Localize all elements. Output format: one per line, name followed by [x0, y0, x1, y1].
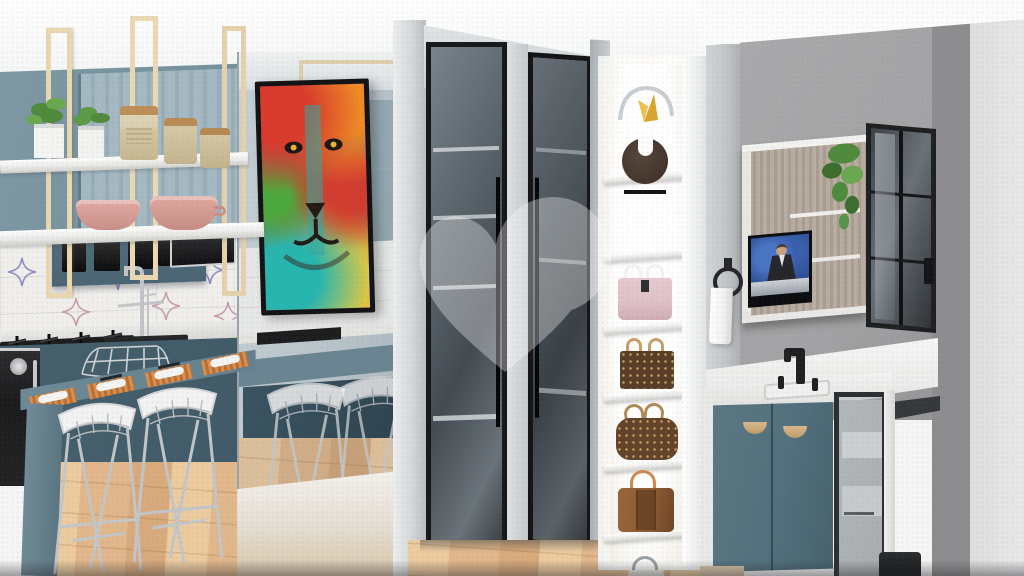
pink-pot-handle — [214, 206, 226, 216]
lion-face-detail — [260, 84, 370, 311]
bathroom-floor-sliver — [700, 566, 744, 576]
wardrobe-interior-shelf — [536, 258, 586, 265]
wardrobe-interior-shelf — [433, 146, 499, 152]
wardrobe-glass-door-corner — [528, 52, 592, 548]
glass-cabinet-face — [866, 123, 936, 333]
reflected-hanging-plant — [814, 137, 866, 242]
wardrobe-center-stile — [507, 44, 528, 546]
cream-handbag — [622, 570, 670, 576]
vanity-left-stile — [702, 396, 713, 572]
ring-sculpture-notch — [638, 136, 653, 156]
tv-screen-news-studio — [751, 234, 809, 297]
wall-bracket — [924, 258, 934, 284]
satchel-flap-detail — [636, 490, 656, 530]
display-shelf-unit — [598, 56, 708, 570]
monogram-duffel-bag — [616, 418, 678, 460]
kraft-jar — [164, 118, 197, 164]
wardrobe-glass-door — [426, 42, 507, 546]
wardrobe-interior-shelf — [433, 284, 499, 290]
interior-render — [0, 0, 1024, 576]
vanity-cabinet — [713, 402, 833, 572]
monogram-tote-bag — [620, 351, 674, 389]
wardrobe-door-handle — [496, 177, 500, 427]
news-anchor-head — [776, 243, 787, 256]
glass-partition-frame — [834, 392, 886, 576]
gold-arc-sculpture — [614, 80, 676, 126]
brass-half-moon-pull — [783, 426, 807, 438]
glass-cabinet-reflection — [875, 133, 895, 321]
wardrobe-interior-shelf — [433, 214, 499, 220]
mirror-cabinet-face — [742, 135, 866, 324]
wardrobe-interior-shelf — [536, 148, 586, 155]
kraft-jar — [200, 128, 230, 168]
bathroom-far-right-wall — [970, 0, 1024, 576]
vanity-door-seam — [771, 402, 773, 572]
sculpture-stand — [624, 190, 666, 194]
wardrobe-left-stile — [393, 20, 426, 576]
kraft-jar-label — [126, 128, 152, 144]
reflected-tv — [748, 230, 812, 308]
oven-dial — [10, 358, 27, 375]
wardrobe-door-handle — [535, 177, 539, 417]
potted-herb — [62, 100, 120, 160]
news-desk — [751, 278, 809, 297]
wardrobe-floor-shadow — [420, 540, 610, 552]
lion-artwork — [255, 78, 375, 315]
wardrobe-interior-shelf — [433, 414, 499, 421]
waste-bin — [879, 552, 921, 576]
vanity-faucet — [770, 342, 824, 394]
brass-half-moon-pull — [743, 422, 767, 434]
wardrobe-interior-shelf — [536, 388, 586, 396]
glass-cabinet-mullion-vertical — [899, 131, 903, 325]
pink-handbag-clasp — [641, 280, 649, 292]
bar-stool — [124, 366, 228, 566]
partition-white-stile — [884, 390, 895, 576]
bathroom-right-wall — [932, 10, 970, 576]
hand-towel — [709, 288, 733, 345]
